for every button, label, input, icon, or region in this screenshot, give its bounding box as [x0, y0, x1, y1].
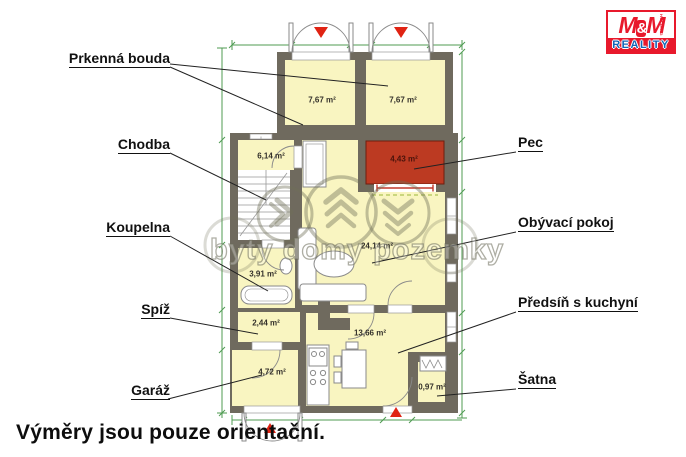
chair — [346, 342, 358, 349]
room-garaz — [232, 350, 298, 406]
living-kitchen-opening-1 — [348, 305, 374, 313]
room-area-garaz: 4,72 m² — [258, 368, 286, 377]
label-prkenna-bouda: Prkenná bouda — [69, 50, 170, 68]
watermark-text: byty domy pozemky — [210, 234, 504, 267]
entrance-triangle-icon — [314, 27, 328, 38]
mm-reality-logo: M&M HOLDING REALITY — [606, 10, 676, 54]
room-area-pec: 4,43 m² — [390, 155, 418, 164]
label-spiz: Spíž — [141, 301, 170, 319]
chair — [334, 372, 341, 383]
living-kitchen-opening-2 — [388, 305, 412, 313]
wardrobe — [303, 141, 326, 187]
room-area-bouda-left: 7,67 m² — [308, 96, 336, 105]
kitchen-table — [342, 350, 366, 388]
room-area-kuchyne: 13,66 m² — [354, 329, 386, 338]
label-satna: Šatna — [518, 371, 556, 389]
label-obyvaci-pokoj: Obývací pokoj — [518, 214, 614, 232]
room-bouda-right — [366, 60, 445, 125]
room-area-koupelna: 3,91 m² — [249, 270, 277, 279]
sofa-horizontal — [300, 284, 366, 301]
room-area-spiz: 2,44 m² — [252, 319, 280, 328]
label-predsin-s-kuchyni: Předsíň s kuchyní — [518, 294, 638, 312]
chair — [334, 356, 341, 367]
spiz-garaz-door-opening — [252, 342, 282, 350]
disclaimer-note: Výměry jsou pouze orientační. — [16, 421, 325, 445]
label-garaz: Garáž — [131, 382, 170, 400]
shed-right-door-opening — [372, 52, 430, 60]
floorplan-page: 7,67 m² 7,67 m² 6,14 m² 4,43 m² 24,14 m²… — [0, 0, 686, 457]
stove — [309, 348, 327, 366]
logo-mm-text: M&M HOLDING — [608, 12, 674, 38]
chodba-door-opening — [294, 146, 302, 168]
room-area-bouda-right: 7,67 m² — [389, 96, 417, 105]
pec-room — [358, 133, 452, 195]
shed-left-door-opening — [292, 52, 350, 60]
entrance-triangle-icon — [394, 27, 408, 38]
label-chodba: Chodba — [118, 136, 170, 154]
logo-reality-text: REALITY — [608, 38, 674, 52]
logo-ampersand: & — [636, 20, 647, 37]
label-pec: Pec — [518, 134, 543, 152]
room-area-chodba: 6,14 m² — [257, 152, 285, 161]
logo-holding-text: HOLDING — [648, 14, 674, 36]
room-area-satna: 0,97 m² — [418, 383, 446, 392]
label-koupelna: Koupelna — [106, 219, 170, 237]
room-bouda-left — [285, 60, 355, 125]
garage-door-opening — [244, 406, 300, 413]
